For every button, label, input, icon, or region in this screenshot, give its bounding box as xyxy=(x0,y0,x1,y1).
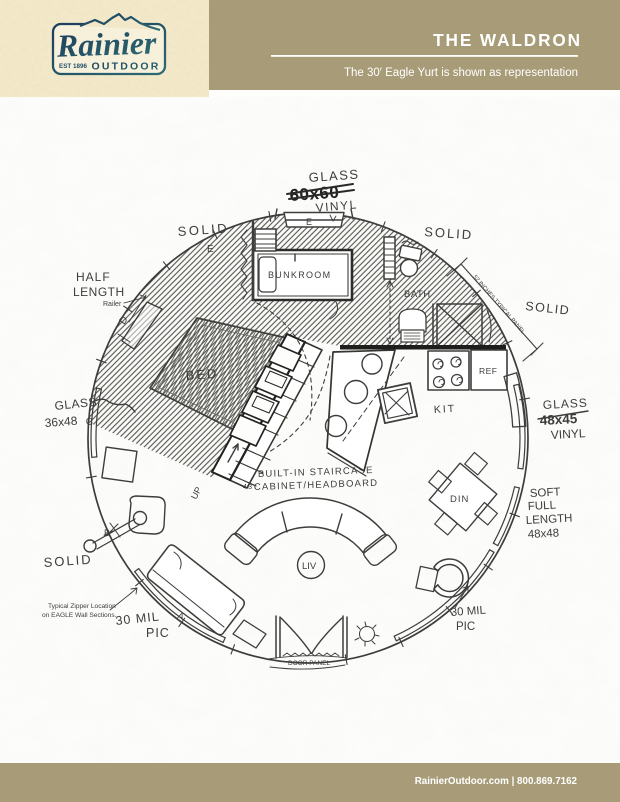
svg-text:BED: BED xyxy=(185,366,219,383)
svg-text:OUTDOOR: OUTDOOR xyxy=(91,61,160,73)
svg-text:THE WALDRON: THE WALDRON xyxy=(433,30,582,50)
svg-text:LENGTH: LENGTH xyxy=(526,513,573,527)
svg-text:Rainier: Rainier xyxy=(55,24,157,64)
svg-text:RainierOutdoor.com | 800.869.7: RainierOutdoor.com | 800.869.7162 xyxy=(415,776,578,787)
svg-text:GLASS: GLASS xyxy=(542,396,588,412)
svg-text:36x48: 36x48 xyxy=(44,414,78,430)
svg-text:PIC: PIC xyxy=(146,626,170,640)
svg-text:on EAGLE Wall Sections.: on EAGLE Wall Sections. xyxy=(42,612,117,619)
svg-text:BUNKROOM: BUNKROOM xyxy=(268,270,331,280)
svg-text:43: 43 xyxy=(243,484,253,491)
svg-text:Typical Zipper Location: Typical Zipper Location xyxy=(48,603,116,610)
svg-text:SOFT: SOFT xyxy=(530,486,561,500)
svg-text:B: B xyxy=(104,528,110,538)
svg-text:LENGTH: LENGTH xyxy=(73,285,125,299)
svg-text:BATH: BATH xyxy=(404,289,431,300)
svg-text:The 30′ Eagle Yurt is shown as: The 30′ Eagle Yurt is shown as represent… xyxy=(344,67,578,79)
svg-text:C: C xyxy=(85,417,93,428)
svg-text:KIT: KIT xyxy=(434,403,457,416)
svg-text:E: E xyxy=(306,217,312,227)
svg-text:48x48: 48x48 xyxy=(528,527,560,541)
svg-text:VINYL: VINYL xyxy=(550,426,586,442)
svg-text:DOOR PANEL: DOOR PANEL xyxy=(288,660,331,667)
svg-text:Railer: Railer xyxy=(103,301,122,308)
svg-text:DIN: DIN xyxy=(450,494,469,505)
svg-text:REF: REF xyxy=(479,366,498,376)
svg-text:EST 1896: EST 1896 xyxy=(59,63,88,70)
svg-text:HALF: HALF xyxy=(76,270,111,284)
svg-text:LIV: LIV xyxy=(302,561,317,572)
svg-text:FULL: FULL xyxy=(528,500,557,513)
svg-text:E: E xyxy=(207,244,214,255)
svg-text:PIC: PIC xyxy=(456,621,475,633)
